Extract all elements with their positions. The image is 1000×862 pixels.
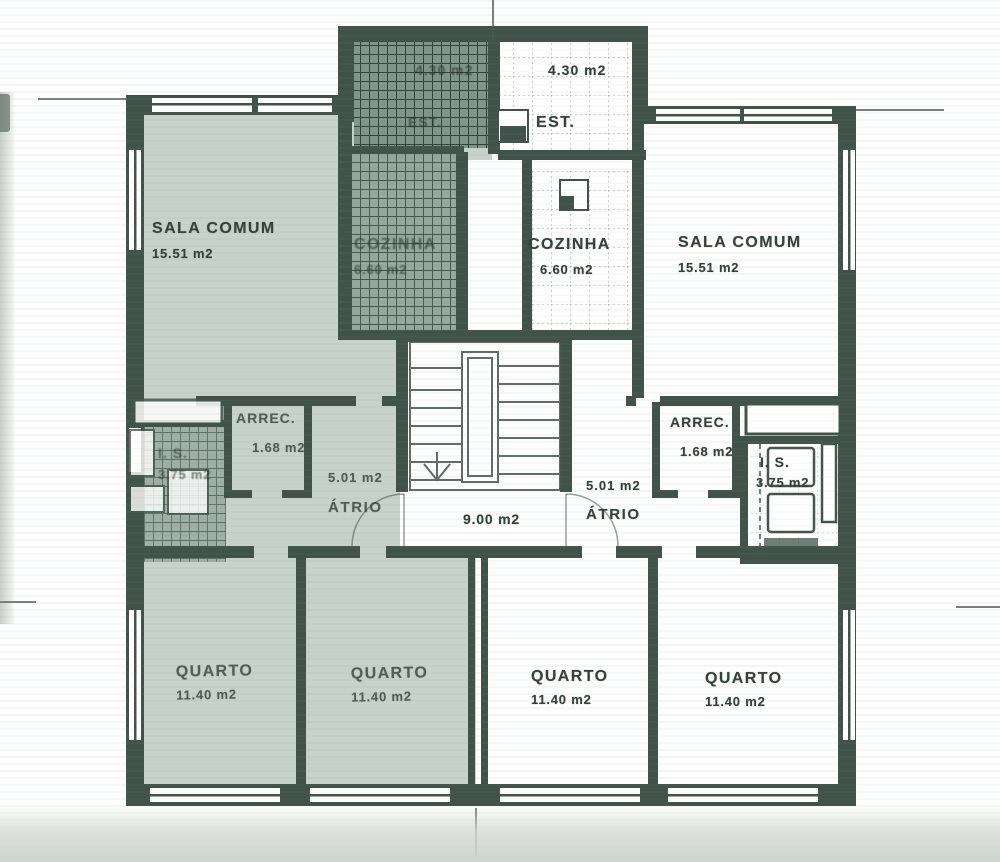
- room-label-est-left-area: 4.30 m2: [415, 62, 473, 78]
- room-label-sala-left: SALA COMUM 15.51 m2: [152, 220, 276, 261]
- is-left-name: I. S.: [158, 445, 211, 461]
- atrio-right-area: 5.01 m2: [586, 478, 641, 493]
- arrec-left-area: 1.68 m2: [252, 440, 305, 455]
- sala-right-area: 15.51 m2: [678, 260, 802, 275]
- room-label-quarto-left-2: QUARTO 11.40 m2: [351, 664, 429, 704]
- is-right-area: 3.75 m2: [756, 475, 809, 490]
- arrec-left-name: ARREC.: [236, 410, 305, 426]
- room-label-cozinha-left: COZINHA 6.60 m2: [354, 236, 437, 277]
- room-label-atrio-left: 5.01 m2 ÁTRIO: [328, 470, 383, 516]
- quarto-left-2-area: 11.40 m2: [351, 688, 429, 704]
- room-label-quarto-right-1: QUARTO 11.40 m2: [531, 668, 608, 707]
- cozinha-right-area: 6.60 m2: [540, 262, 611, 277]
- sala-right-name: SALA COMUM: [678, 234, 802, 252]
- atrio-left-name: ÁTRIO: [328, 499, 383, 516]
- est-right-area: 4.30 m2: [548, 62, 606, 78]
- room-label-est-left: EST.: [408, 114, 442, 130]
- room-label-arrec-right: ARREC. 1.68 m2: [670, 414, 733, 459]
- est-left-name: EST.: [408, 114, 442, 130]
- is-right-name: I. S.: [760, 454, 809, 470]
- room-label-is-left: I. S. 3.75 m2: [158, 445, 211, 482]
- room-label-arrec-left: ARREC. 1.68 m2: [236, 410, 305, 455]
- room-label-sala-right: SALA COMUM 15.51 m2: [678, 234, 802, 275]
- room-label-quarto-right-2: QUARTO 11.40 m2: [705, 670, 782, 709]
- cozinha-left-name: COZINHA: [354, 236, 437, 254]
- quarto-right-2-name: QUARTO: [705, 670, 782, 688]
- stair-landing-area: 9.00 m2: [463, 511, 520, 527]
- est-left-hatch: [354, 42, 488, 148]
- is-left-area: 3.75 m2: [158, 467, 211, 482]
- room-label-stair-landing: 9.00 m2: [463, 511, 520, 527]
- room-label-quarto-left-1: QUARTO 11.40 m2: [176, 662, 254, 702]
- est-right-name: EST.: [536, 114, 575, 132]
- sala-left-name: SALA COMUM: [152, 220, 276, 238]
- atrio-right-name: ÁTRIO: [586, 506, 641, 523]
- scanned-floor-plan-page: SALA COMUM 15.51 m2 4.30 m2 EST. 4.30 m2…: [0, 0, 1000, 862]
- quarto-left-1-name: QUARTO: [176, 662, 254, 681]
- room-label-cozinha-right: COZINHA 6.60 m2: [528, 236, 611, 277]
- quarto-right-1-name: QUARTO: [531, 668, 608, 686]
- cozinha-left-area: 6.60 m2: [354, 262, 437, 277]
- quarto-left-2-name: QUARTO: [351, 664, 429, 683]
- quarto-right-1-area: 11.40 m2: [531, 692, 608, 707]
- arrec-right-area: 1.68 m2: [680, 444, 733, 459]
- quarto-left-1-area: 11.40 m2: [176, 686, 254, 702]
- floor-plan-drawing: [0, 0, 1000, 862]
- quarto-right-2-area: 11.40 m2: [705, 694, 782, 709]
- room-label-est-right-area: 4.30 m2: [548, 62, 606, 78]
- arrec-right-name: ARREC.: [670, 414, 733, 430]
- closet-left: [134, 400, 222, 424]
- est-left-area: 4.30 m2: [415, 62, 473, 78]
- room-label-atrio-right: 5.01 m2 ÁTRIO: [586, 478, 641, 523]
- bathroom-mat-right: [764, 538, 818, 550]
- cozinha-right-name: COZINHA: [528, 236, 611, 254]
- room-label-est-right: EST.: [536, 114, 575, 132]
- staircase: [410, 342, 560, 490]
- room-label-is-right: I. S. 3.75 m2: [760, 454, 809, 490]
- closet-right: [746, 404, 840, 434]
- atrio-left-area: 5.01 m2: [328, 470, 383, 485]
- sala-left-area: 15.51 m2: [152, 246, 276, 261]
